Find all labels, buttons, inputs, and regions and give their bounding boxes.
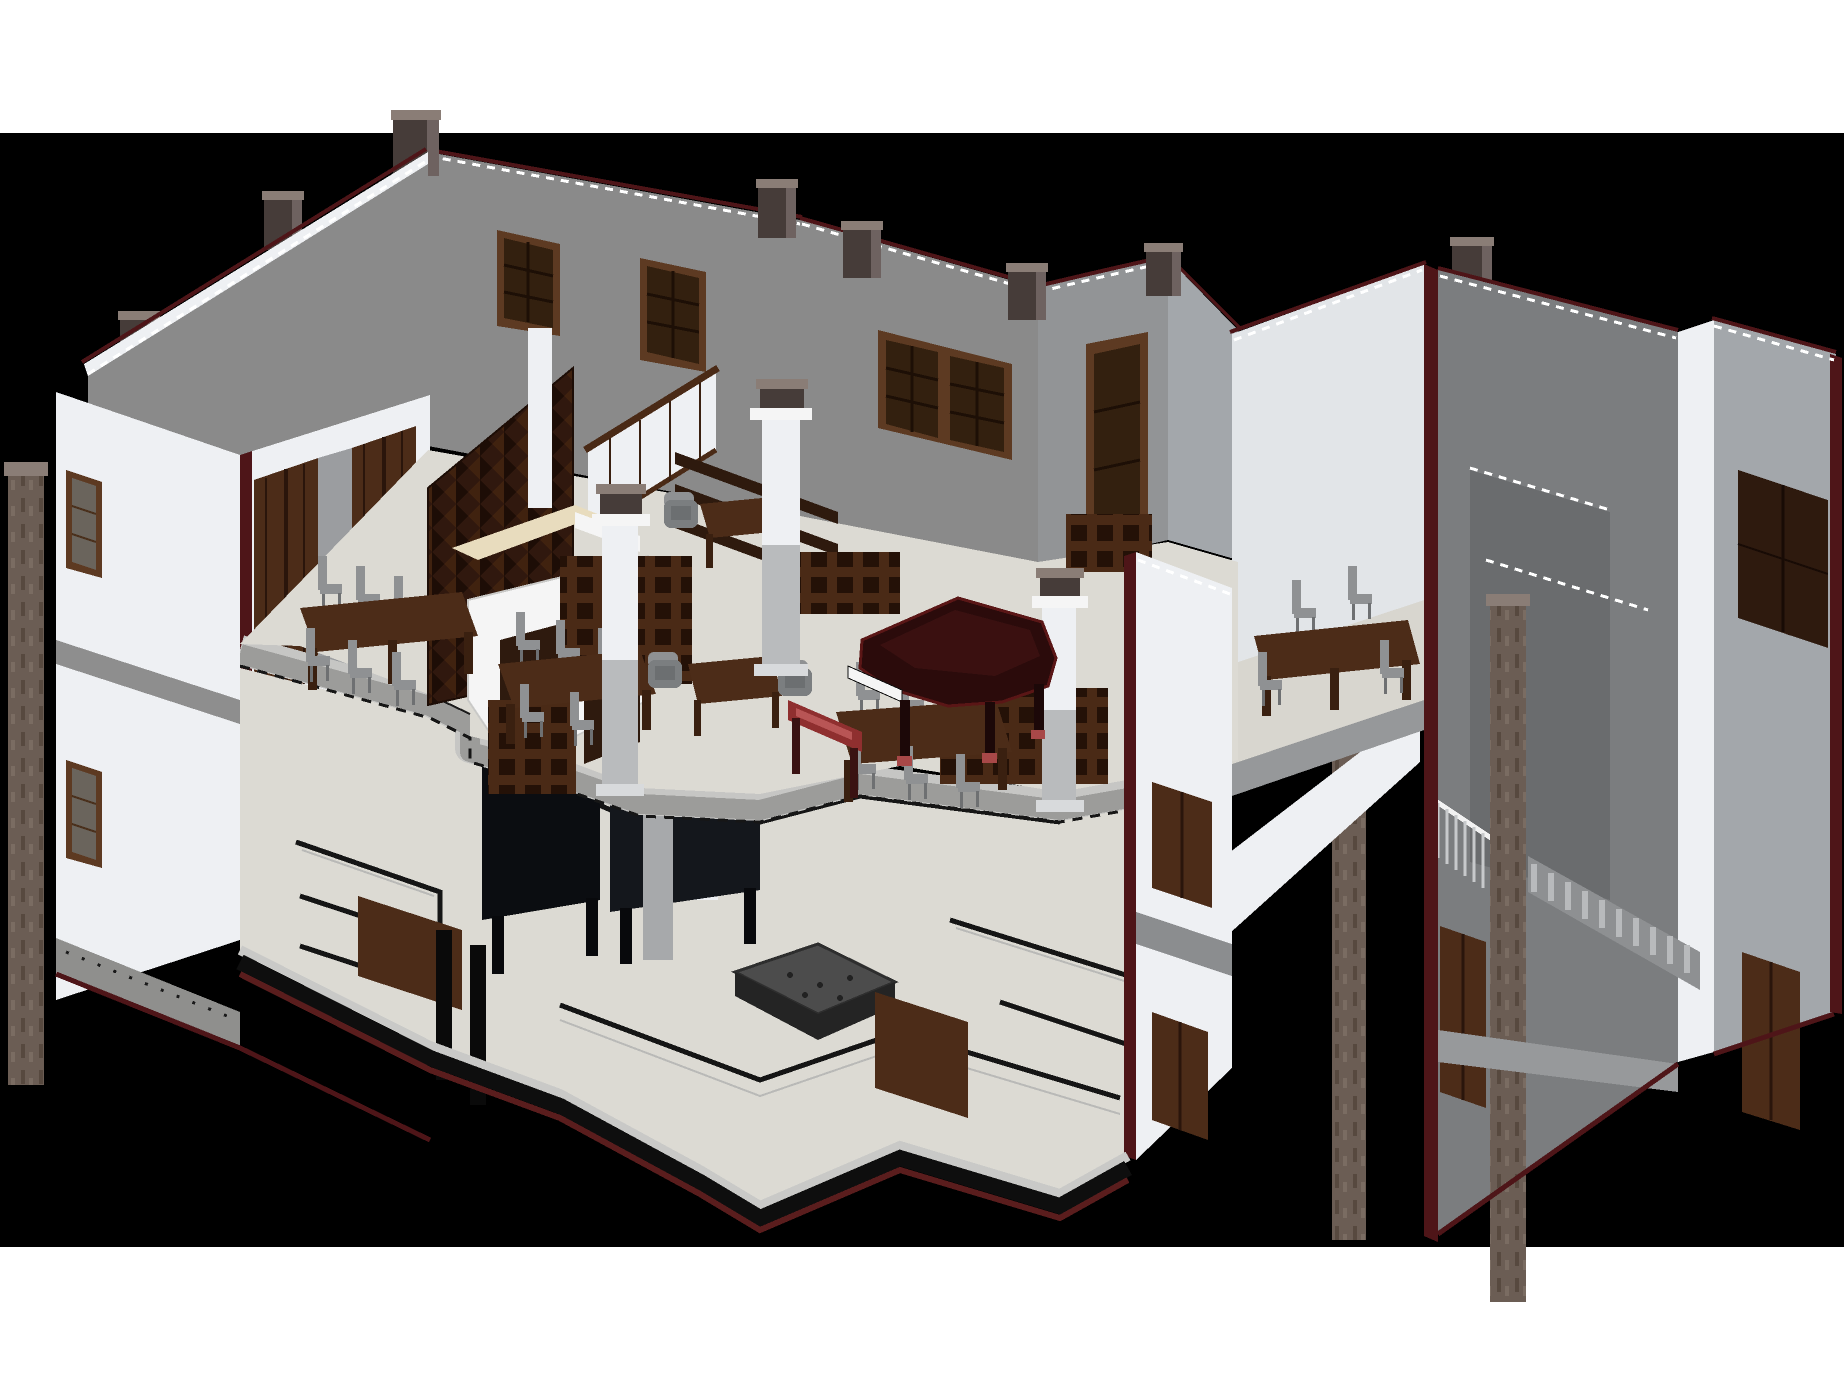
stone-pillar [1490, 602, 1526, 1302]
right-wing-front-wall [1232, 264, 1424, 664]
stone-pillar [4, 462, 48, 1085]
right-wing-far-wall [1714, 320, 1836, 1052]
screenshot-canvas [0, 0, 1844, 1383]
window-6pane [66, 760, 102, 868]
wardrobe [1738, 470, 1828, 648]
window-6pane [640, 258, 706, 372]
mid-cut-wall [1124, 552, 1232, 1160]
window-6pane [497, 230, 560, 336]
section-cut-edge [1424, 264, 1438, 1242]
panel-door [1152, 1012, 1208, 1140]
panel-door [1440, 926, 1486, 1108]
panel-door [1152, 782, 1212, 908]
cube-bookshelf [796, 552, 900, 614]
section-cut-edge [1830, 354, 1842, 1014]
window-6pane [66, 470, 102, 578]
axonometric-3d-view [0, 0, 1844, 1383]
tall-window [1086, 332, 1148, 544]
wall-pilaster [528, 328, 552, 508]
section-cut-edge [1124, 552, 1136, 1160]
